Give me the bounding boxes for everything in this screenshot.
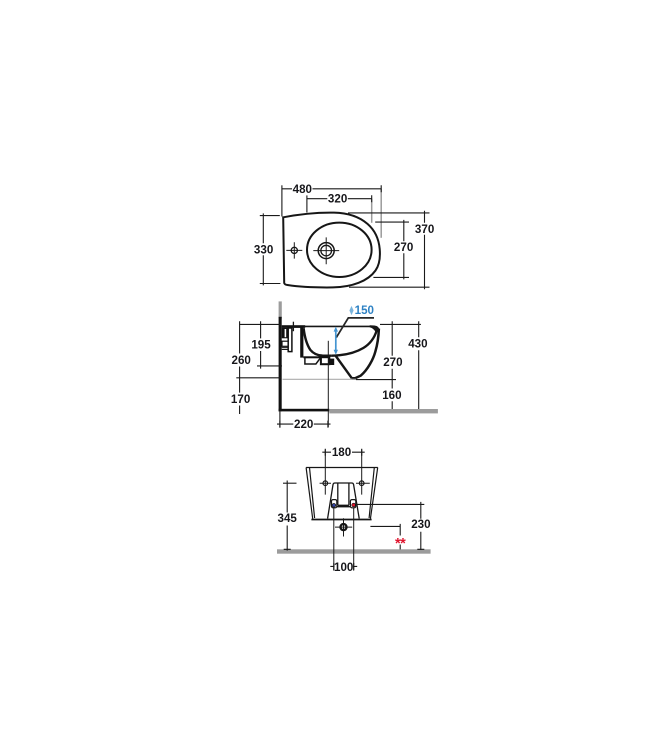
- svg-text:370: 370: [415, 223, 434, 236]
- svg-text:260: 260: [232, 354, 251, 367]
- svg-text:330: 330: [254, 243, 273, 256]
- svg-text:150: 150: [355, 304, 374, 317]
- svg-text:430: 430: [408, 338, 427, 351]
- svg-text:180: 180: [332, 446, 351, 459]
- svg-text:170: 170: [231, 393, 250, 406]
- svg-text:100: 100: [334, 561, 353, 574]
- svg-text:160: 160: [382, 389, 401, 402]
- svg-text:**: **: [395, 536, 406, 552]
- svg-text:230: 230: [411, 518, 430, 531]
- svg-text:480: 480: [293, 183, 312, 196]
- svg-text:220: 220: [294, 418, 313, 431]
- svg-text:270: 270: [394, 241, 413, 254]
- svg-text:270: 270: [383, 356, 402, 369]
- svg-text:320: 320: [328, 193, 347, 206]
- svg-text:345: 345: [278, 512, 298, 525]
- svg-text:195: 195: [251, 339, 271, 352]
